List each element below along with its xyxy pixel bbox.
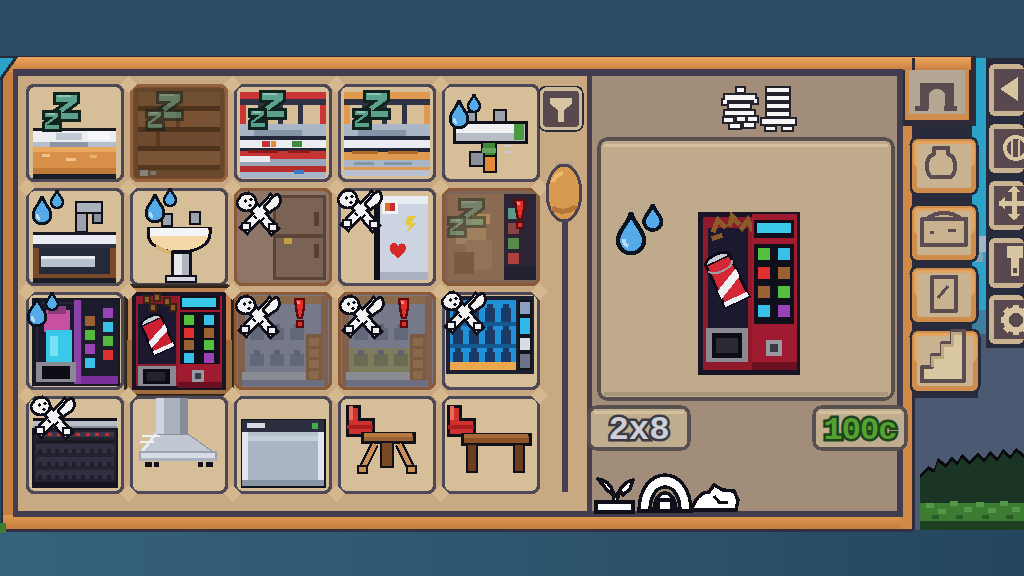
svg-text:2x8: 2x8 [608,411,669,449]
svg-text:100c: 100c [824,412,897,449]
